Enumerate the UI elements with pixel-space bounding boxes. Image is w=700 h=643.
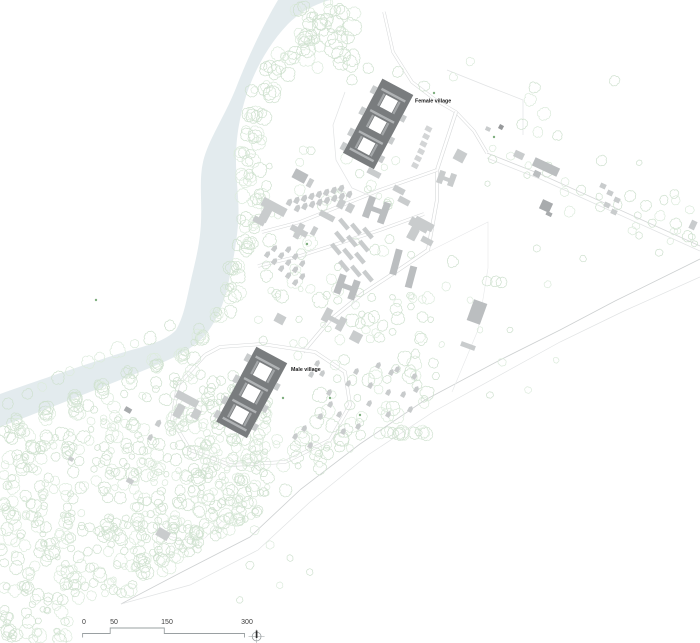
svg-text:300: 300 <box>241 619 253 626</box>
svg-text:Female village: Female village <box>415 99 451 105</box>
svg-text:0: 0 <box>82 619 86 626</box>
svg-text:Male village: Male village <box>291 367 321 373</box>
svg-text:150: 150 <box>161 619 173 626</box>
svg-text:50: 50 <box>110 619 118 626</box>
